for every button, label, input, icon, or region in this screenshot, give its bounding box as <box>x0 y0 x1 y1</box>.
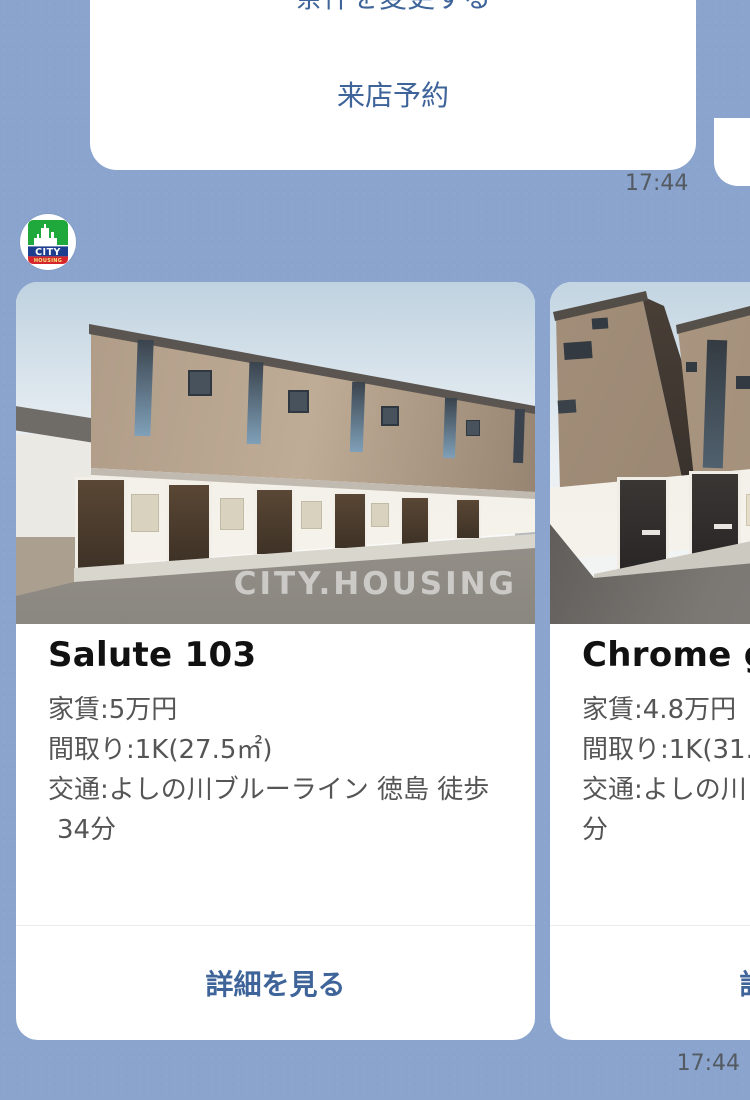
photo1-window-sq <box>188 370 212 396</box>
property-card[interactable]: CITY.HOUSING Salute 103 家賃:5万円 間取り:1K(27… <box>16 282 535 1040</box>
property-card[interactable]: Chrome ga 家賃:4.8万円 間取り:1K(31.7 交通:よしの川ブ … <box>550 282 750 1040</box>
photo1-window-sq <box>288 390 309 413</box>
photo1-window-sq <box>466 420 480 436</box>
photo1-window-strip <box>247 362 264 444</box>
photo2-meter-box <box>746 494 750 526</box>
property-title: Chrome ga <box>582 635 750 675</box>
photo2-window <box>563 341 592 360</box>
photo1-door <box>335 494 365 548</box>
details-button-label: 詳細を見る <box>739 963 750 1003</box>
photo2-window <box>592 317 609 329</box>
photo2-door-slit <box>642 530 660 535</box>
photo1-window-strip <box>350 382 365 452</box>
property-details: 家賃:5万円 間取り:1K(27.5㎡) 交通:よしの川ブルーライン 徳島 徒歩… <box>48 690 510 850</box>
visit-reservation-button[interactable]: 来店予約 <box>90 80 696 112</box>
message-timestamp: 17:44 <box>630 1052 740 1076</box>
rent-line: 家賃:4.8万円 <box>582 690 750 730</box>
transit-line-wrap: 分 <box>582 810 750 850</box>
bot-avatar[interactable]: CITY HOUSING <box>20 214 76 270</box>
photo1-door <box>78 480 124 568</box>
property-photo: CITY.HOUSING <box>16 282 535 624</box>
photo2-window <box>686 362 697 372</box>
details-button[interactable]: 詳細を見る <box>550 925 750 1040</box>
photo1-meter-box <box>301 501 322 529</box>
property-photo <box>550 282 750 624</box>
line-chat-screen: { "background_color": "#8AA4CE", "menu_b… <box>0 0 750 1100</box>
details-button-label: 詳細を見る <box>205 963 345 1003</box>
photo1-door <box>457 500 479 538</box>
photo1-meter-box <box>220 498 244 530</box>
photo1-door <box>402 498 428 544</box>
photo1-door <box>169 485 209 561</box>
layout-line: 間取り:1K(31.7 <box>582 730 750 770</box>
photo1-meter-box <box>131 494 159 532</box>
rent-line: 家賃:5万円 <box>48 690 510 730</box>
menu-message-bubble: 条件を変更する 来店予約 <box>90 0 696 170</box>
transit-line: 交通:よしの川ブルーライン 徳島 徒歩 <box>48 770 510 810</box>
svg-text:CITY: CITY <box>35 247 61 258</box>
property-details: 家賃:4.8万円 間取り:1K(31.7 交通:よしの川ブ 分 <box>582 690 750 850</box>
photo-watermark: CITY.HOUSING <box>234 566 517 602</box>
photo1-window-strip <box>134 340 153 436</box>
photo2-door-slit <box>714 524 732 529</box>
photo1-meter-box <box>371 503 389 527</box>
change-conditions-button[interactable]: 条件を変更する <box>90 0 696 14</box>
svg-text:HOUSING: HOUSING <box>34 258 62 264</box>
photo1-window-sq <box>381 406 399 426</box>
layout-line: 間取り:1K(27.5㎡) <box>48 730 510 770</box>
transit-line: 交通:よしの川ブ <box>582 770 750 810</box>
photo1-window-strip <box>443 398 457 458</box>
photo1-door <box>257 490 292 554</box>
photo1-window-strip <box>513 409 525 463</box>
property-title: Salute 103 <box>48 635 503 675</box>
transit-line-wrap: 34分 <box>48 810 510 850</box>
photo2-window <box>736 376 750 389</box>
message-timestamp: 17:44 <box>625 172 745 196</box>
photo2-window <box>558 399 577 413</box>
city-housing-logo-icon: CITY HOUSING <box>28 220 68 264</box>
details-button[interactable]: 詳細を見る <box>16 925 535 1040</box>
